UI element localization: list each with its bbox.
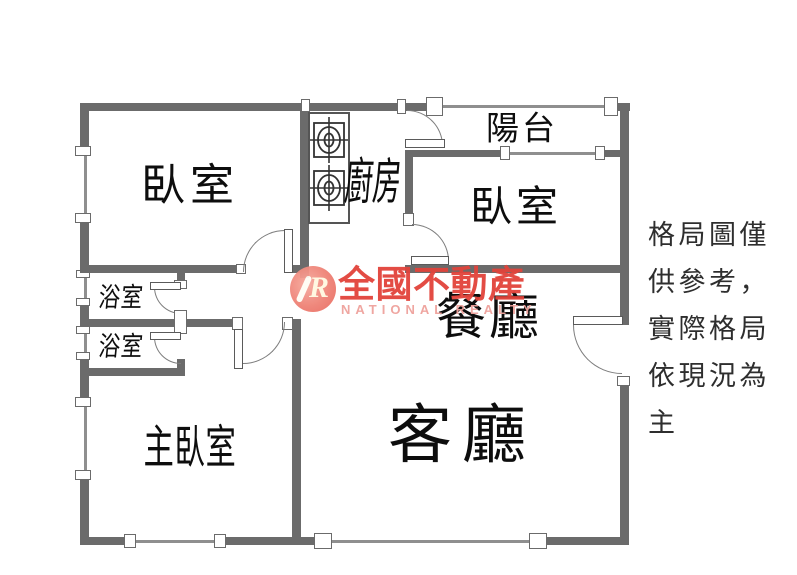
watermark-logo-letter: R [309,273,329,303]
bedroom1-left-window [84,155,87,220]
left-window-frame-5 [76,326,90,334]
left-window-frame-4 [76,298,90,306]
outer-wall-right-upper [620,103,629,325]
balcony-window-frame-2 [595,146,605,160]
room-label-living: 客廳 [388,403,536,467]
living-room-bottom-window [320,540,544,543]
room-label-bathroom-lower: 浴室 [97,334,144,361]
room-label-bedroom-right: 臥室 [470,186,562,228]
entrance-door-frame [617,376,630,386]
bedroom2-dining-wall [405,265,629,273]
bedroom2-door-panel [411,256,449,265]
floor-plan: 臥室 廚房 陽台 臥室 餐廳 客廳 浴室 浴室 主臥室 R 全國不動產 NATI… [0,0,797,575]
top-right-window-frame [604,97,618,116]
watermark-logo-slash-icon [296,275,313,303]
entrance-door-arc [573,325,622,374]
disclaimer-line-1: 格局圖僅 [648,212,770,259]
balcony-bottom-wall-1 [405,150,502,157]
room-label-bedroom-top-left: 臥室 [141,164,239,208]
outer-wall-left-5 [80,477,89,545]
left-window-frame-8 [75,470,91,480]
disclaimer-line-3: 實際格局 [648,306,770,353]
master-bedroom-left-window [84,405,87,477]
bottom-window-frame-1 [124,534,136,548]
outer-wall-top [80,103,432,111]
balcony-door-panel [405,139,445,148]
bathroom2-door-panel [150,332,181,340]
left-window-frame-2 [75,213,91,223]
balcony-top-window [443,105,606,108]
outer-wall-bottom-3 [544,537,629,545]
master-bedroom-bottom-window [130,540,226,543]
room-label-dining: 餐廳 [436,292,542,342]
bottom-window-frame-2 [214,534,226,548]
disclaimer-line-2: 供參考， [648,259,770,306]
bedroom1-door-panel [284,229,293,273]
bathroom-separator-wall [80,319,234,327]
room-label-master-bedroom: 主臥室 [143,424,236,470]
left-window-frame-6 [76,352,90,360]
bedroom2-left-wall [405,150,413,217]
master-bedroom-right-wall [292,319,301,545]
left-window-frame-1 [75,146,91,156]
top-wall-tick-kitchen-right [397,99,406,114]
room-label-balcony: 陽台 [486,112,558,145]
room-label-kitchen: 廚房 [343,157,403,207]
bathroom2-door-arc [154,337,181,364]
balcony-window-frame-1 [500,146,510,160]
master-door-panel [234,329,243,369]
top-door-frame [426,97,443,116]
room-label-bathroom-upper: 浴室 [97,285,144,312]
bottom-window-frame-3 [314,533,332,549]
outer-wall-bottom-2 [226,537,320,545]
entrance-door-panel [573,316,623,325]
bedroom1-bottom-wall [80,265,240,273]
balcony-bottom-wall-2 [603,150,629,157]
master-door-arc [243,322,285,364]
disclaimer-note: 格局圖僅 供參考， 實際格局 依現況為 主 [648,212,770,447]
bottom-window-frame-4 [529,533,547,549]
bedroom1-door-arc [243,230,285,272]
left-window-frame-7 [75,397,91,407]
disclaimer-line-5: 主 [648,400,770,447]
bathroom-mid-frame [174,310,187,334]
bathroom1-door-panel [150,282,181,290]
bathroom2-bottom-wall [80,368,185,376]
balcony-bottom-window [510,152,597,155]
disclaimer-line-4: 依現況為 [648,353,770,400]
outer-wall-right-lower [620,383,629,545]
